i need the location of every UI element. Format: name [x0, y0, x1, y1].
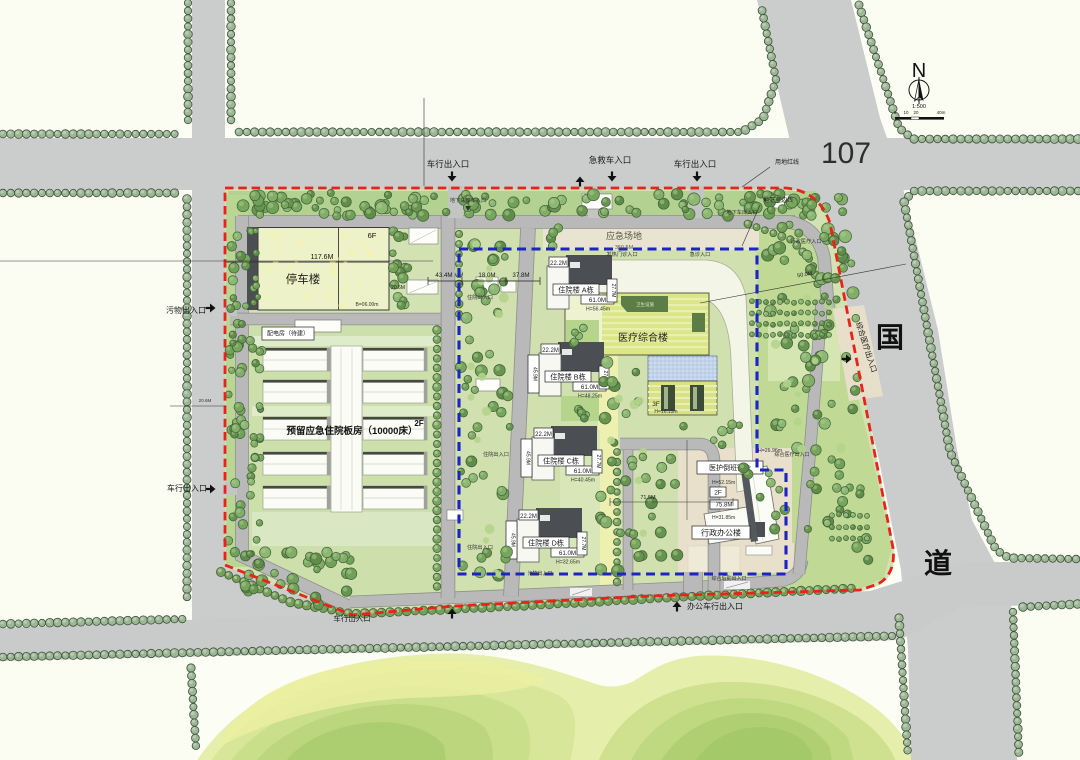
svg-text:117.6M: 117.6M: [311, 254, 334, 261]
svg-text:用地红线: 用地红线: [775, 158, 799, 166]
svg-text:43.4M: 43.4M: [435, 272, 452, 279]
svg-text:45.9M: 45.9M: [525, 451, 531, 465]
svg-text:B=06.00m: B=06.00m: [356, 302, 379, 308]
svg-text:H=40.45m: H=40.45m: [571, 478, 595, 484]
svg-text:车行出入口: 车行出入口: [427, 159, 470, 169]
svg-text:22.2M: 22.2M: [535, 432, 552, 438]
svg-text:37.8M: 37.8M: [512, 272, 529, 279]
svg-text:车行出入口: 车行出入口: [167, 483, 207, 493]
svg-text:停车楼: 停车楼: [286, 272, 321, 286]
svg-text:107: 107: [821, 137, 871, 170]
svg-text:27.7M: 27.7M: [595, 455, 601, 469]
svg-text:6F: 6F: [368, 231, 377, 240]
svg-text:行政办公楼: 行政办公楼: [701, 527, 741, 537]
svg-text:22.2M: 22.2M: [550, 261, 567, 267]
svg-text:行政医疗入口: 行政医疗入口: [790, 237, 821, 245]
svg-text:10: 10: [903, 110, 909, 115]
svg-text:车行出入口: 车行出入口: [674, 159, 717, 169]
svg-text:3F: 3F: [652, 401, 660, 408]
svg-text:急救车入口: 急救车入口: [589, 155, 632, 165]
svg-text:住院楼 B栋: 住院楼 B栋: [550, 373, 586, 382]
svg-text:住院楼 A栋: 住院楼 A栋: [558, 286, 594, 295]
svg-text:27.7M: 27.7M: [580, 537, 586, 551]
svg-text:H=52.15m: H=52.15m: [712, 480, 735, 486]
svg-text:2F: 2F: [714, 489, 722, 496]
svg-text:20.6M: 20.6M: [199, 398, 212, 403]
svg-text:61.0M: 61.0M: [574, 468, 591, 475]
svg-text:办公车行出入口: 办公车行出入口: [687, 601, 743, 611]
svg-text:H=32.65m: H=32.65m: [556, 560, 580, 566]
svg-text:急诊入口: 急诊入口: [690, 250, 711, 258]
svg-text:卫生设施: 卫生设施: [636, 301, 654, 308]
svg-text:配电房（待建）: 配电房（待建）: [267, 330, 309, 338]
svg-text:H=31.85m: H=31.85m: [712, 515, 735, 521]
svg-text:综合医疗出入口: 综合医疗出入口: [774, 451, 809, 458]
svg-text:地下室边线: 地下室边线: [763, 196, 793, 204]
svg-text:应急场地: 应急场地: [606, 230, 642, 241]
svg-text:预留应急住院板房（10000床）: 预留应急住院板房（10000床）: [287, 425, 418, 437]
svg-text:住院出入口: 住院出入口: [483, 450, 509, 458]
svg-text:国: 国: [876, 322, 904, 353]
svg-text:45.9M: 45.9M: [510, 533, 516, 547]
svg-text:住院出入口: 住院出入口: [467, 543, 493, 551]
svg-text:地下车库入口: 地下车库入口: [726, 208, 757, 216]
svg-text:40m: 40m: [937, 110, 946, 115]
svg-text:医疗综合楼: 医疗综合楼: [618, 331, 668, 344]
svg-text:18.0M: 18.0M: [478, 272, 495, 279]
svg-text:住院出入口: 住院出入口: [467, 293, 493, 301]
svg-text:污物出入口: 污物出入口: [527, 570, 552, 577]
svg-text:地下车库车入口: 地下车库车入口: [450, 196, 486, 204]
svg-text:H=56.45m: H=56.45m: [586, 307, 610, 313]
svg-text:71.5M: 71.5M: [640, 495, 656, 501]
svg-text:61.0M: 61.0M: [581, 384, 598, 391]
svg-text:22.2M: 22.2M: [520, 514, 537, 520]
svg-text:45.9M: 45.9M: [532, 367, 538, 381]
svg-text:75.8M: 75.8M: [716, 503, 733, 509]
svg-text:350.5M: 350.5M: [615, 245, 634, 251]
svg-text:住院楼 D栋: 住院楼 D栋: [528, 539, 564, 548]
svg-text:61.0M: 61.0M: [589, 297, 606, 304]
svg-text:20: 20: [913, 110, 919, 115]
svg-text:住院楼 C栋: 住院楼 C栋: [543, 457, 579, 466]
svg-text:综合后勤出入口: 综合后勤出入口: [711, 575, 746, 582]
svg-text:道: 道: [924, 547, 952, 579]
svg-text:20.6M: 20.6M: [391, 285, 405, 291]
svg-text:发热门诊入口: 发热门诊入口: [606, 250, 637, 258]
svg-text:22.2M: 22.2M: [542, 348, 559, 354]
svg-text:61.0M: 61.0M: [559, 550, 576, 557]
svg-text:27.7M: 27.7M: [610, 284, 616, 298]
svg-text:2F: 2F: [414, 419, 423, 428]
svg-text:H=16.15m: H=16.15m: [654, 409, 677, 415]
svg-text:污物出入口: 污物出入口: [166, 305, 206, 315]
svg-text:H=48.25m: H=48.25m: [578, 394, 602, 400]
svg-text:车行出入口: 车行出入口: [333, 613, 371, 623]
